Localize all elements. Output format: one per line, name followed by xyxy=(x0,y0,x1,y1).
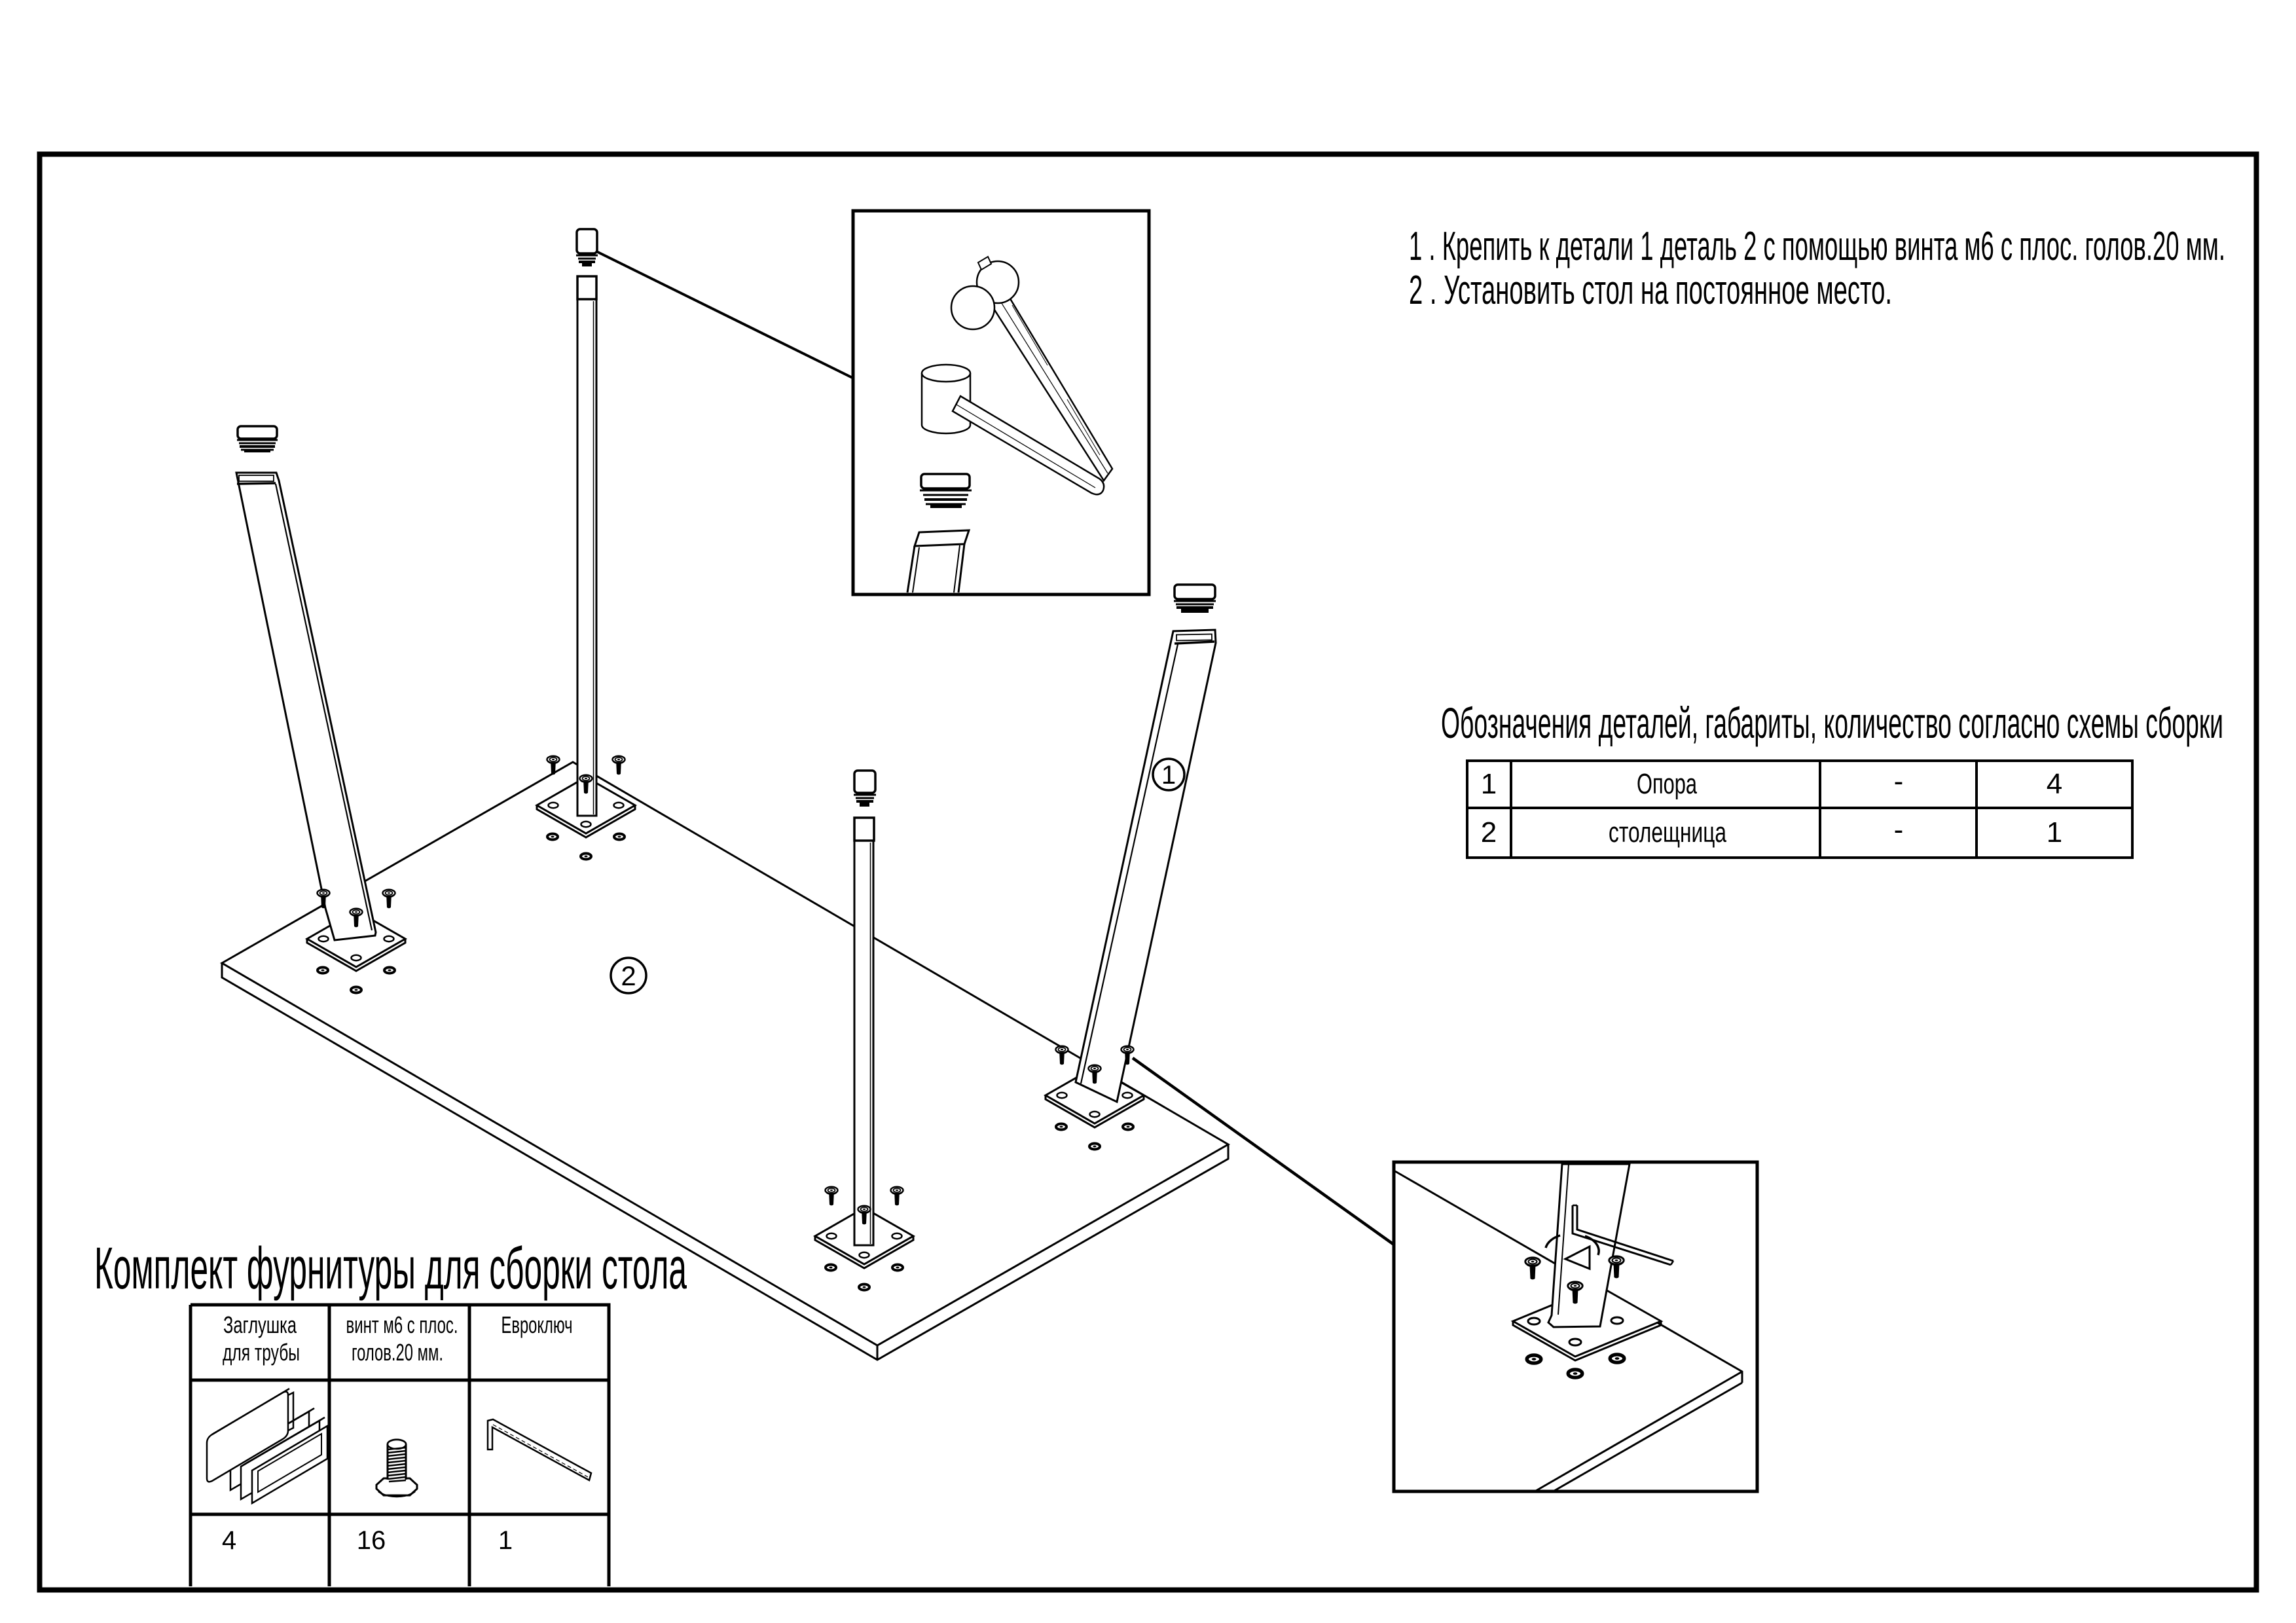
svg-text:2: 2 xyxy=(1481,816,1497,848)
svg-text:Заглушка: Заглушка xyxy=(223,1311,297,1338)
svg-text:16: 16 xyxy=(357,1526,386,1555)
svg-text:4: 4 xyxy=(222,1526,236,1555)
svg-text:винт м6 с плос.: винт м6 с плос. xyxy=(346,1311,458,1338)
svg-text:Опора: Опора xyxy=(1637,768,1697,800)
svg-text:Комплект фурнитуры для сборки: Комплект фурнитуры для сборки стола xyxy=(94,1236,687,1302)
svg-text:столещница: столещница xyxy=(1609,816,1726,848)
svg-text:1 . Крепить к детали 1 деталь: 1 . Крепить к детали 1 деталь 2 с помощь… xyxy=(1409,224,2225,269)
svg-text:1: 1 xyxy=(1481,768,1497,800)
svg-text:для трубы: для трубы xyxy=(223,1339,300,1366)
svg-text:Евроключ: Евроключ xyxy=(501,1311,573,1338)
svg-text:4: 4 xyxy=(2047,768,2062,800)
svg-text:-: - xyxy=(1894,814,1904,846)
svg-text:1: 1 xyxy=(498,1526,513,1555)
svg-text:голов.20 мм.: голов.20 мм. xyxy=(352,1339,443,1366)
svg-text:1: 1 xyxy=(2047,816,2062,848)
svg-text:2: 2 xyxy=(621,960,636,991)
svg-text:Обозначения деталей, габариты,: Обозначения деталей, габариты, количеств… xyxy=(1441,699,2223,747)
svg-text:2 . Установить стол на постоян: 2 . Установить стол на постоянное место. xyxy=(1409,268,1892,313)
svg-text:1: 1 xyxy=(1161,761,1176,790)
svg-text:-: - xyxy=(1894,765,1904,797)
